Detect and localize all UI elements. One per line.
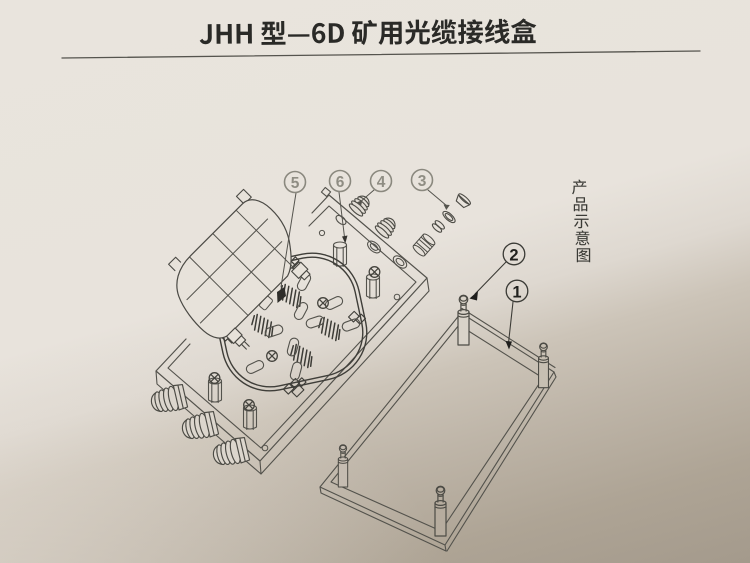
- svg-text:6: 6: [336, 174, 345, 191]
- svg-text:2: 2: [509, 247, 518, 265]
- svg-text:5: 5: [291, 175, 300, 192]
- svg-text:3: 3: [418, 173, 427, 190]
- svg-text:4: 4: [377, 174, 386, 191]
- svg-text:1: 1: [512, 284, 521, 302]
